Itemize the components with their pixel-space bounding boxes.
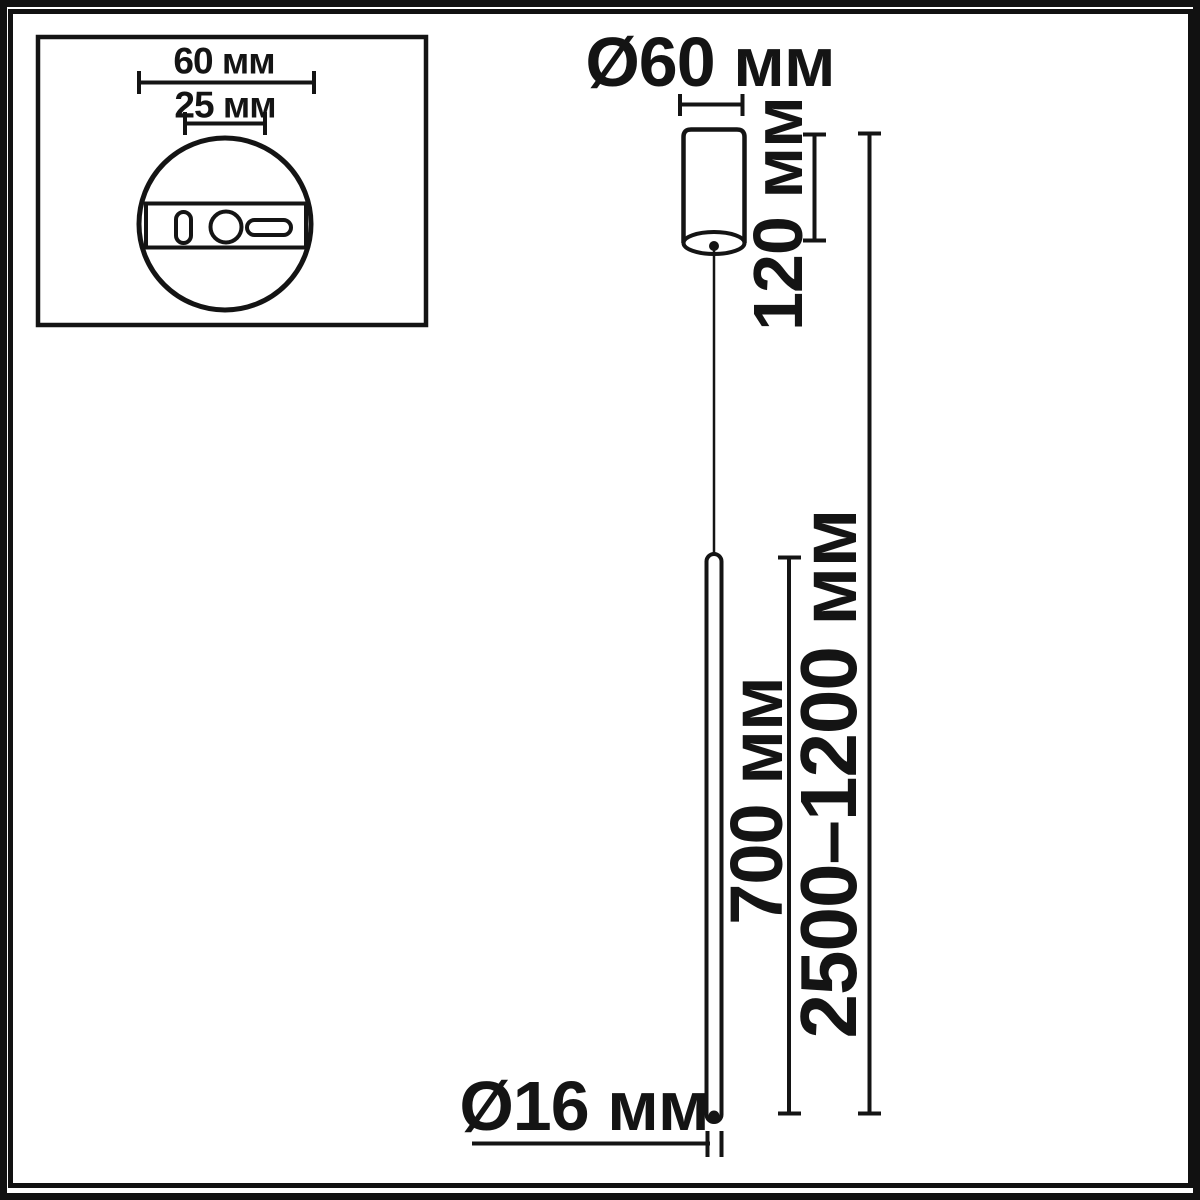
- bracket-center-hole: [211, 212, 242, 243]
- canopy-body: [684, 130, 745, 244]
- suspension-range-label: 2500–1200 мм: [789, 509, 869, 1038]
- inset-hole-spacing-label: 25 мм: [174, 87, 275, 124]
- bracket-slot-horizontal: [247, 220, 291, 235]
- inset-width-label: 60 мм: [173, 43, 274, 80]
- pendant-lamp-dimension-diagram: 60 мм 25 мм Ø60 мм 120 мм 700 мм 2500–12…: [0, 0, 1200, 1200]
- canopy-height-label: 120 мм: [743, 97, 813, 331]
- diagram-drawing: [0, 0, 1200, 1200]
- rod-tip-dot: [709, 1111, 720, 1122]
- rod-length-label: 700 мм: [720, 677, 794, 925]
- rod-diameter-label: Ø16 мм: [459, 1071, 708, 1141]
- canopy-diameter-label: Ø60 мм: [585, 27, 834, 97]
- bracket-slot-vertical: [176, 212, 191, 243]
